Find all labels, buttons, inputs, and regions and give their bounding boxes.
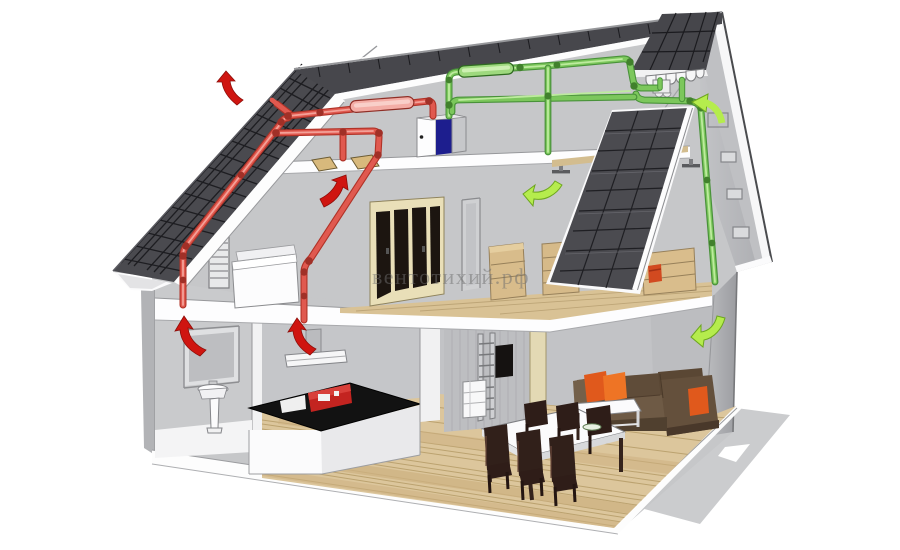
svg-text:вентотихий.рф: вентотихий.рф — [372, 264, 530, 289]
